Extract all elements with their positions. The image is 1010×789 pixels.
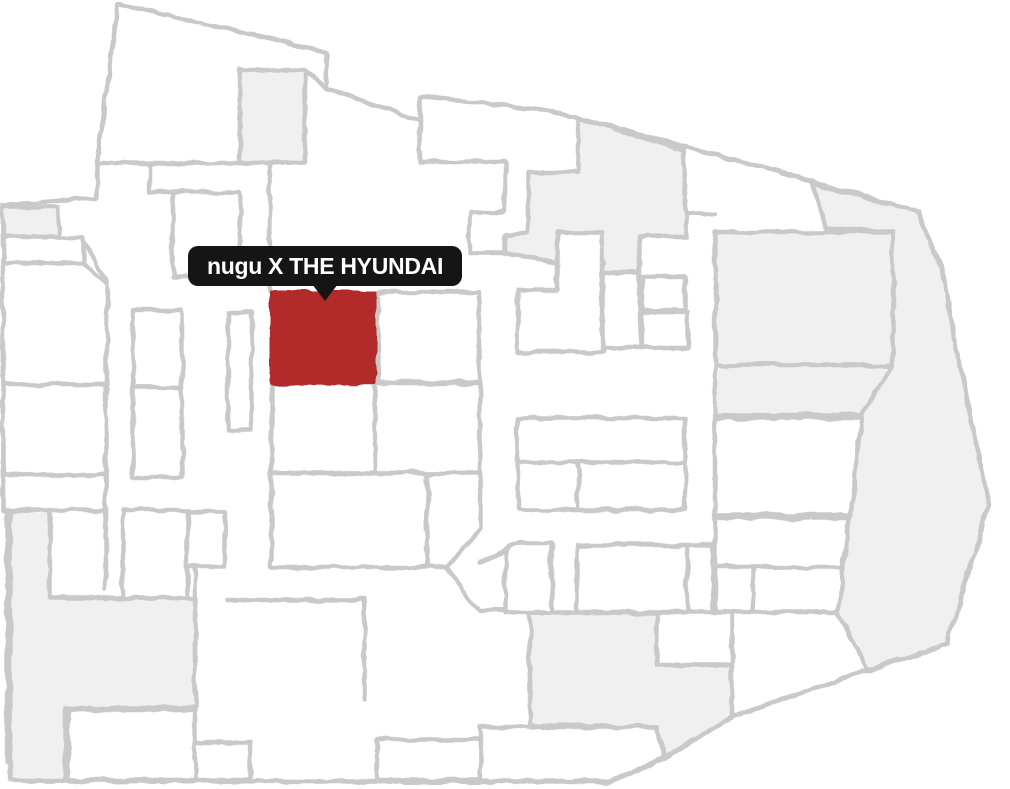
room-right-of-highlight: [378, 292, 480, 382]
room-left-a: [3, 237, 83, 263]
room-bottom-left-inner: [68, 710, 195, 780]
highlight-room-nugu[interactable]: [271, 292, 375, 383]
room-narrow-b: [133, 388, 182, 477]
room-left-b: [3, 263, 107, 385]
store-tooltip: nugu X THE HYUNDAI: [188, 246, 462, 286]
room-left-c: [3, 385, 106, 475]
room-left-f: [187, 512, 225, 567]
tooltip-pointer-icon: [312, 284, 338, 301]
room-narrow-a: [133, 310, 182, 388]
room-center-b: [642, 277, 685, 310]
wall-corridor-top: [687, 212, 715, 214]
room-block-d: [577, 545, 713, 612]
room-left-d: [3, 475, 106, 510]
floor-map[interactable]: [0, 0, 1010, 789]
room-below-highlight-a: [271, 383, 375, 473]
room-block-b: [715, 418, 862, 515]
room-bottom-a: [377, 740, 480, 780]
shaded-left-small: [3, 207, 58, 237]
room-center-south-a: [271, 473, 427, 567]
floor-map-canvas[interactable]: nugu X THE HYUNDAI: [0, 0, 1010, 789]
room-rounded-end: [505, 543, 552, 613]
room-center-a: [603, 273, 640, 348]
room-narrow-c: [228, 312, 252, 430]
room-bottom-left-small: [195, 742, 250, 780]
shaded-top-square: [240, 70, 305, 163]
room-bottom-b: [480, 727, 665, 781]
shaded-right-large: [715, 232, 893, 365]
store-tooltip-label: nugu X THE HYUNDAI: [207, 255, 443, 278]
room-center-c: [642, 312, 688, 348]
room-left-e: [123, 510, 187, 598]
room-below-highlight-b: [375, 383, 480, 473]
